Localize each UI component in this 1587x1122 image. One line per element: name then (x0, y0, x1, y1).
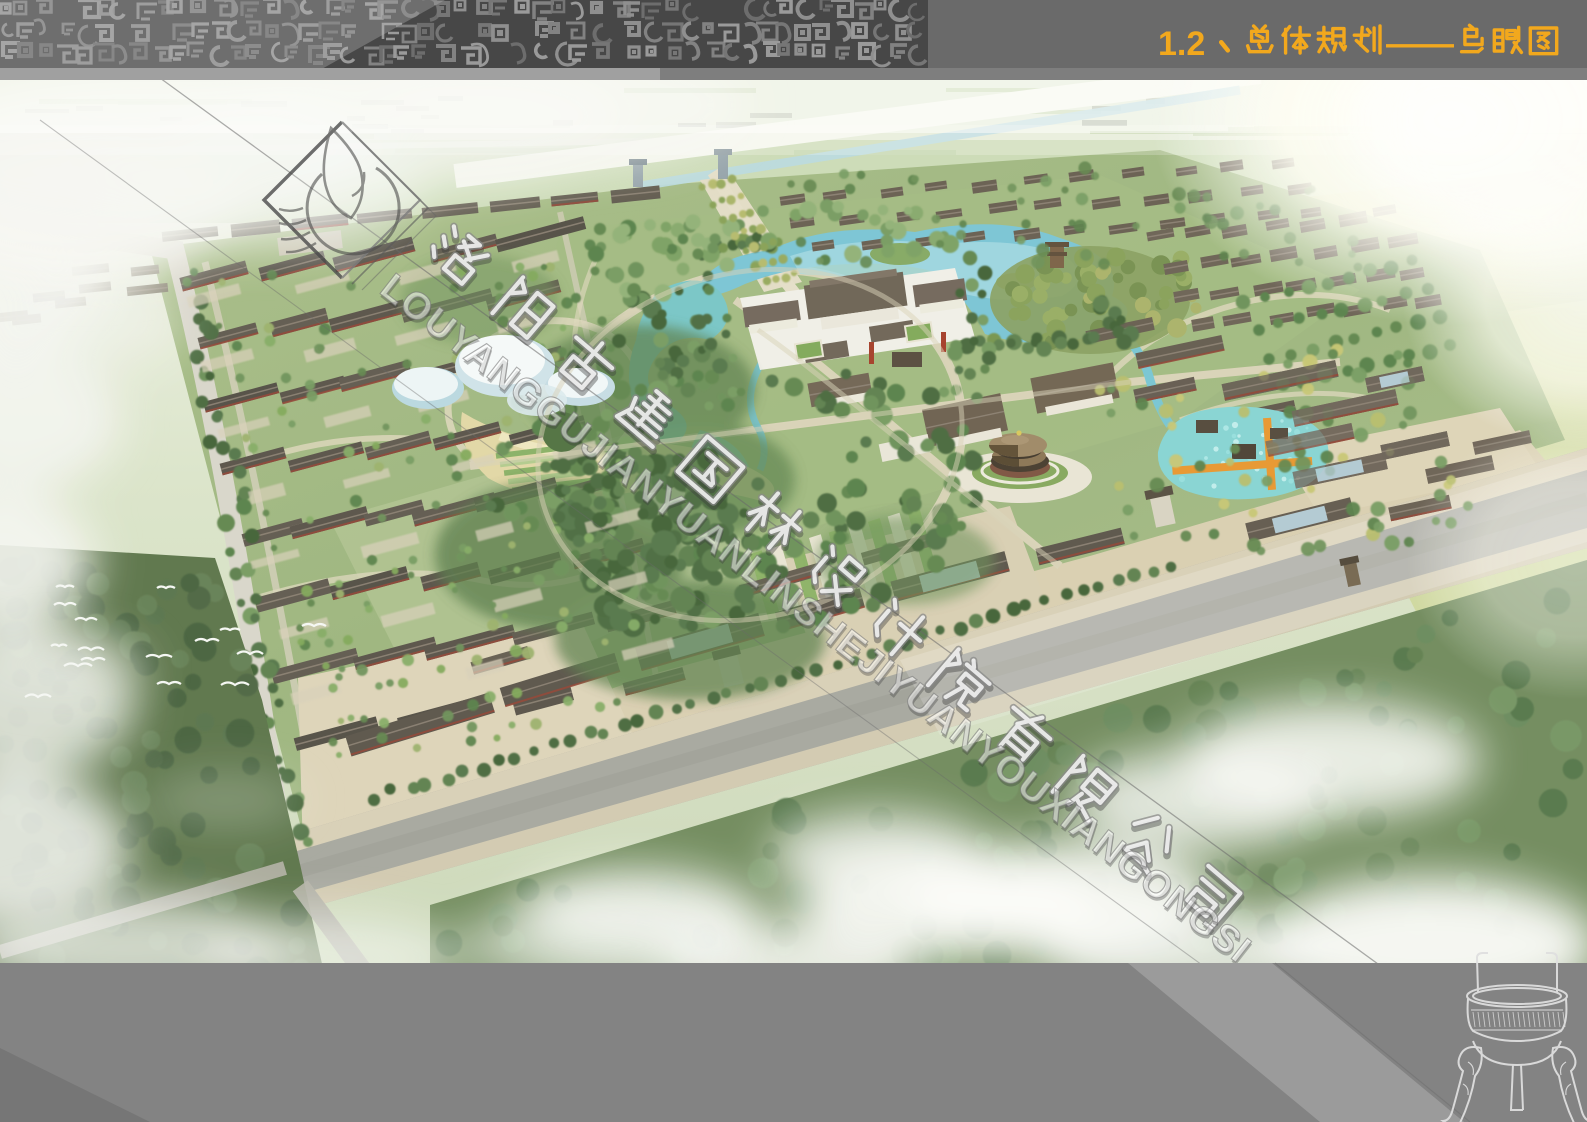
svg-text:——: —— (1386, 25, 1454, 63)
svg-text:1.2: 1.2 (1158, 25, 1205, 63)
